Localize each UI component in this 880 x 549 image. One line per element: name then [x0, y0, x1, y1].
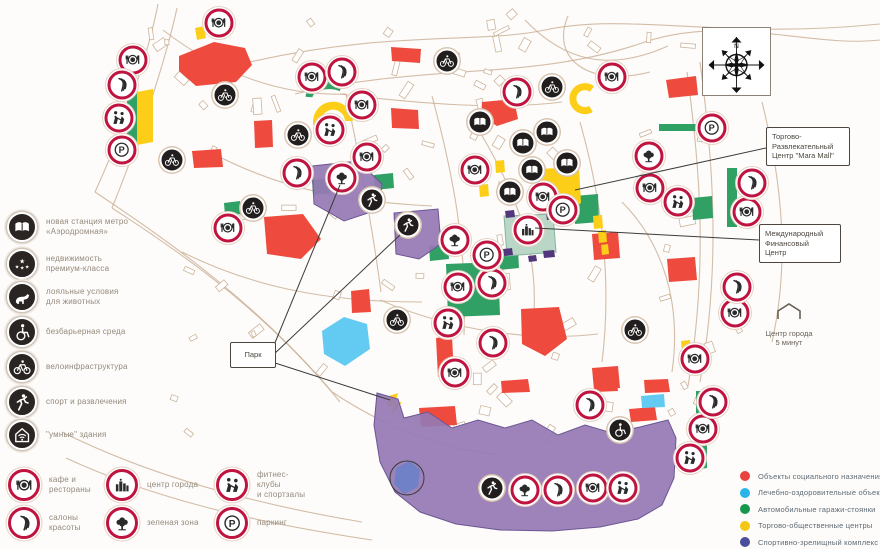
legend-item-dog: лояльные условия для животных — [7, 282, 177, 312]
legend-item-parking: P паркинг — [216, 507, 312, 539]
background-building — [403, 168, 413, 180]
sport-icon — [7, 387, 37, 417]
sport-map-icon — [360, 188, 385, 213]
color-legend-item: Автомобильные гаражи-стоянки — [740, 504, 876, 514]
district-map-poster: PPPP новая станция метро «Аэродромная»★★… — [0, 0, 880, 549]
background-building — [422, 141, 435, 148]
yellow-building — [601, 244, 609, 255]
background-building — [587, 41, 601, 53]
background-building — [506, 9, 517, 20]
sport-map-icon — [480, 476, 505, 501]
background-building — [316, 364, 328, 377]
legend-item-city: центр города — [106, 469, 202, 501]
restaurant-map-icon — [348, 91, 377, 120]
legend-item-label: велоинфраструктура — [46, 362, 128, 372]
background-building — [292, 49, 304, 63]
parking-map-icon: P — [549, 196, 578, 225]
background-building — [487, 19, 496, 30]
background-building — [663, 244, 670, 252]
legend-item-label: центр города — [147, 480, 198, 490]
darkpurple-building — [503, 248, 513, 256]
background-building — [518, 38, 531, 53]
legend-item-label: недвижимость премиум-класса — [46, 254, 109, 274]
restaurant-map-icon — [441, 359, 470, 388]
fitness-map-icon — [664, 188, 693, 217]
darkpurple-building — [528, 255, 537, 262]
wheelchair-map-icon — [608, 418, 633, 443]
restaurant-map-icon — [636, 174, 665, 203]
background-building — [399, 81, 414, 99]
legend-item-sport: спорт и развлечения — [7, 387, 177, 417]
restaurant-icon — [8, 469, 40, 501]
fitness-map-icon — [676, 444, 705, 473]
salon-map-icon — [108, 71, 137, 100]
background-building — [668, 408, 676, 416]
tree-map-icon — [511, 476, 540, 505]
legend-item-salon: салоны красоты — [8, 507, 104, 539]
color-dot — [740, 504, 750, 514]
metro-map-icon — [520, 158, 545, 183]
fitness-map-icon — [316, 116, 345, 145]
color-legend-label: Автомобильные гаражи-стоянки — [758, 505, 876, 514]
salon-map-icon — [723, 273, 752, 302]
background-building — [497, 235, 504, 246]
red-building — [391, 47, 421, 63]
salon-map-icon — [738, 169, 767, 198]
red-building — [192, 149, 223, 168]
green-building — [692, 196, 713, 220]
background-building — [659, 294, 670, 301]
color-legend-item: Торгово-общественные центры — [740, 521, 872, 531]
background-building — [474, 80, 486, 90]
yellow-building — [593, 215, 603, 229]
restaurant-map-icon — [353, 143, 382, 172]
financial-center-callout: Международный Финансовый Центр — [759, 224, 841, 263]
legend-item-label: спорт и развлечения — [46, 397, 127, 407]
salon-map-icon — [328, 58, 357, 87]
color-legend-item: Лечебно-оздоровительные объекты — [740, 488, 880, 498]
darkpurple-building — [543, 250, 555, 258]
metro-map-icon — [468, 110, 493, 135]
city-center-note-label: Центр города 5 минут — [757, 329, 821, 347]
legend-item-bike: велоинфраструктура — [7, 352, 177, 382]
svg-text:★: ★ — [25, 264, 30, 270]
darkpurple-building — [505, 210, 515, 218]
yellow-building — [495, 160, 505, 173]
fitness-map-icon — [105, 104, 134, 133]
background-building — [189, 334, 197, 341]
yellow-building — [598, 230, 607, 243]
color-dot — [740, 471, 750, 481]
background-building — [199, 101, 208, 110]
background-building — [647, 32, 652, 42]
salon-map-icon — [283, 159, 312, 188]
legend-item-fitness: фитнес-клубы и спортзалы — [216, 469, 312, 501]
legend-item-restaurant: кафе и рестораны — [8, 469, 104, 501]
background-building — [184, 428, 194, 437]
road — [700, 62, 713, 382]
color-dot — [740, 521, 750, 531]
yellow-building — [195, 26, 206, 40]
city-map-icon — [514, 216, 543, 245]
svg-text:P: P — [484, 250, 490, 260]
background-building — [482, 360, 496, 373]
tree-map-icon — [635, 142, 664, 171]
bike-map-icon — [160, 148, 185, 173]
background-building — [381, 279, 394, 290]
yellow-building — [137, 89, 153, 145]
legend-item-metro: новая станция метро «Аэродромная» — [7, 212, 177, 242]
tree-map-icon — [441, 226, 470, 255]
red-building — [391, 108, 419, 129]
stars-icon: ★★★★ — [7, 249, 37, 279]
restaurant-map-icon — [733, 198, 762, 227]
bike-map-icon — [286, 123, 311, 148]
background-building — [282, 205, 296, 210]
mall-callout: Торгово- Развлекательный Центр "Mara Mal… — [766, 127, 850, 166]
background-building — [681, 43, 696, 48]
red-building — [666, 76, 698, 98]
metro-map-icon — [498, 180, 523, 205]
background-building — [493, 26, 509, 37]
background-building — [584, 27, 592, 37]
parking-map-icon: P — [698, 114, 727, 143]
restaurant-map-icon — [298, 63, 327, 92]
red-building — [521, 307, 567, 356]
bike-icon — [7, 352, 37, 382]
legend-item-wheelchair: безбарьерная среда — [7, 317, 177, 347]
background-building — [487, 384, 498, 395]
road — [250, 24, 880, 62]
cyan-building — [641, 394, 665, 408]
legend-item-label: салоны красоты — [49, 513, 104, 533]
legend-item-stars: ★★★★ недвижимость премиум-класса — [7, 249, 177, 279]
road — [687, 72, 700, 386]
svg-text:P: P — [119, 145, 125, 155]
salon-map-icon — [478, 269, 507, 298]
smart-icon — [7, 420, 37, 450]
svg-text:P: P — [709, 123, 715, 133]
restaurant-map-icon — [721, 299, 750, 328]
color-legend-label: Спортивно-зрелищный комплекс — [758, 538, 878, 547]
city-icon — [106, 469, 138, 501]
salon-map-icon — [479, 329, 508, 358]
dog-icon — [7, 282, 37, 312]
bike-map-icon — [540, 75, 565, 100]
legend-item-label: зеленая зона — [147, 518, 199, 528]
legend-item-label: новая станция метро «Аэродромная» — [46, 217, 128, 237]
legend-item-tree: зеленая зона — [106, 507, 202, 539]
compass-rose-icon: N — [703, 28, 770, 95]
legend-item-label: кафе и рестораны — [49, 475, 104, 495]
background-building — [165, 40, 169, 45]
tree-icon — [106, 507, 138, 539]
salon-icon — [8, 507, 40, 539]
background-building — [639, 129, 652, 137]
yellow-building — [573, 87, 592, 111]
background-building — [492, 135, 505, 149]
background-building — [183, 266, 194, 274]
restaurant-map-icon — [689, 415, 718, 444]
sport-map-icon — [396, 213, 421, 238]
fitness-map-icon — [434, 309, 463, 338]
metro-icon — [7, 212, 37, 242]
background-building — [271, 95, 281, 112]
salon-map-icon — [544, 476, 573, 505]
salon-map-icon — [699, 388, 728, 417]
restaurant-map-icon — [461, 156, 490, 185]
background-building — [604, 402, 613, 412]
svg-text:P: P — [229, 519, 236, 530]
green-building — [659, 124, 700, 131]
restaurant-map-icon — [444, 273, 473, 302]
metro-map-icon — [555, 151, 580, 176]
restaurant-map-icon — [598, 63, 627, 92]
color-legend-item: Спортивно-зрелищный комплекс — [740, 537, 878, 547]
road — [182, 252, 422, 302]
bike-map-icon — [385, 308, 410, 333]
color-dot — [740, 537, 750, 547]
color-legend-item: Объекты социального назначения — [740, 471, 880, 481]
background-building — [551, 352, 559, 360]
restaurant-map-icon — [579, 474, 608, 503]
legend-item-label: паркинг — [257, 518, 287, 528]
park-callout: Парк — [230, 342, 276, 368]
red-building — [644, 379, 670, 393]
legend-item-smart: "умные" здания — [7, 420, 177, 450]
wheelchair-icon — [7, 317, 37, 347]
color-dot — [740, 488, 750, 498]
salon-map-icon — [503, 78, 532, 107]
city-center-note: Центр города 5 минут — [757, 293, 821, 356]
background-building — [473, 373, 481, 385]
background-building — [681, 381, 689, 390]
red-building — [667, 257, 697, 282]
background-building — [333, 290, 342, 300]
background-building — [383, 27, 393, 37]
tree-map-icon — [328, 164, 357, 193]
background-building — [381, 144, 389, 152]
metro-map-icon — [511, 131, 536, 156]
restaurant-map-icon — [205, 9, 234, 38]
background-building — [148, 28, 154, 40]
red-building — [594, 379, 618, 392]
legend-item-label: лояльные условия для животных — [46, 287, 119, 307]
red-building — [629, 407, 657, 422]
background-building — [416, 273, 424, 278]
color-legend-label: Объекты социального назначения — [758, 472, 880, 481]
background-building — [479, 405, 491, 416]
restaurant-map-icon — [681, 345, 710, 374]
parking-map-icon: P — [108, 136, 137, 165]
red-building — [501, 379, 530, 393]
cyan-building — [322, 317, 370, 366]
compass-box: N — [702, 27, 771, 96]
background-building — [588, 266, 602, 282]
bike-map-icon — [213, 83, 238, 108]
background-building — [248, 324, 264, 338]
parking-map-icon: P — [473, 241, 502, 270]
color-legend-label: Торгово-общественные центры — [758, 521, 872, 530]
fitness-map-icon — [609, 474, 638, 503]
parking-icon: P — [216, 507, 248, 539]
legend-item-label: "умные" здания — [46, 430, 107, 440]
legend-item-label: безбарьерная среда — [46, 327, 126, 337]
bike-map-icon — [435, 49, 460, 74]
fitness-icon — [216, 469, 248, 501]
background-building — [307, 18, 315, 27]
red-building — [254, 120, 273, 148]
svg-text:P: P — [560, 205, 566, 215]
red-building — [264, 214, 321, 259]
legend-item-label: фитнес-клубы и спортзалы — [257, 470, 312, 500]
background-building — [253, 98, 262, 115]
metro-map-icon — [535, 120, 560, 145]
compass-n-label: N — [734, 43, 739, 50]
background-building — [493, 36, 502, 53]
yellow-building — [479, 184, 489, 197]
house-icon — [774, 302, 804, 320]
color-legend-label: Лечебно-оздоровительные объекты — [758, 488, 880, 497]
restaurant-map-icon — [214, 214, 243, 243]
road — [622, 202, 675, 372]
bike-map-icon — [623, 318, 648, 343]
background-building — [497, 391, 513, 407]
red-building — [351, 289, 371, 313]
salon-map-icon — [576, 391, 605, 420]
bike-map-icon — [241, 196, 266, 221]
